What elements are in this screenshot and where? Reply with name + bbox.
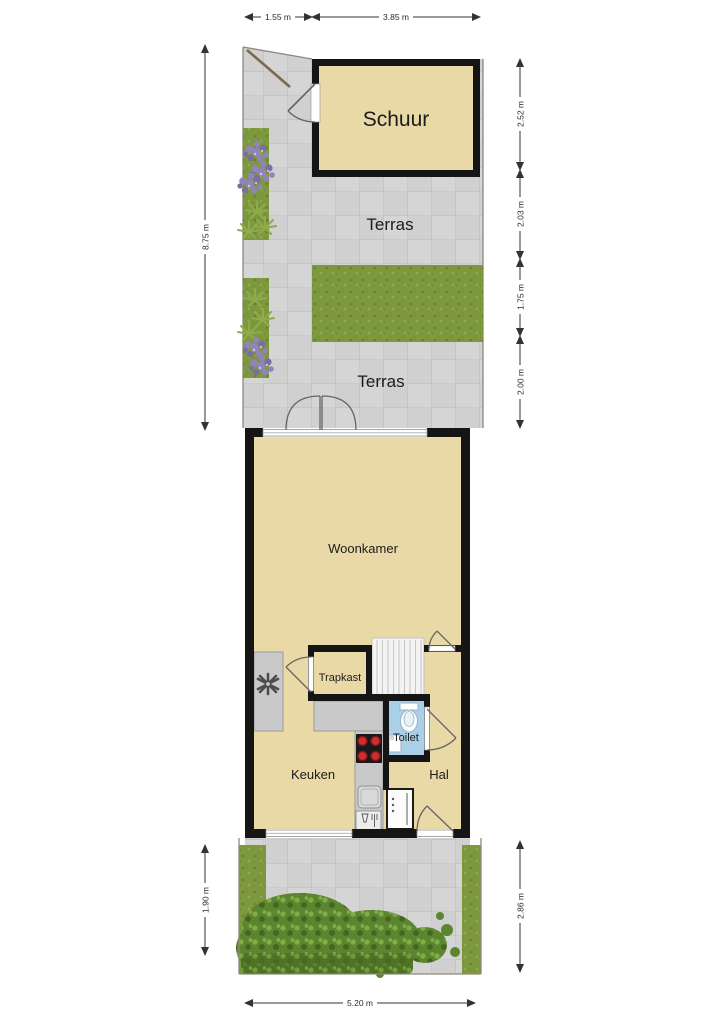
floorplan-page: Terras Terras Schuur xyxy=(0,0,724,1024)
room-label-terras-lower: Terras xyxy=(357,372,404,391)
room-label-hal: Hal xyxy=(429,767,449,782)
back-garden xyxy=(236,838,481,978)
house: Woonkamer Trapkast Toilet Keuken Hal xyxy=(245,396,470,838)
lawn xyxy=(312,265,483,342)
stairs xyxy=(372,638,424,700)
stove-icon xyxy=(356,734,382,763)
schuur-room: Schuur xyxy=(288,59,480,177)
dim-left: 8.75 m xyxy=(201,224,211,250)
dim-right-2: 2.03 m xyxy=(516,201,526,227)
room-label-terras-upper: Terras xyxy=(366,215,413,234)
room-label-trapkast: Trapkast xyxy=(319,672,361,684)
dim-top-2: 3.85 m xyxy=(383,12,409,22)
room-label-toilet: Toilet xyxy=(393,732,419,744)
dim-top-1: 1.55 m xyxy=(265,12,291,22)
floorplan-drawing: Terras Terras Schuur xyxy=(0,0,724,1024)
sink-cabinet-icon xyxy=(356,811,381,830)
flower-bed-lower xyxy=(238,278,274,378)
garden-border-right xyxy=(462,845,481,974)
dim-right-4: 2.00 m xyxy=(516,369,526,395)
room-label-keuken: Keuken xyxy=(291,767,335,782)
sink-icon xyxy=(358,786,381,808)
appliance-icon xyxy=(387,789,413,829)
dim-right-1: 2.52 m xyxy=(516,101,526,127)
schuur-door-opening xyxy=(311,84,320,122)
dim-bottom: 5.20 m xyxy=(347,998,373,1008)
garden-hedge xyxy=(241,953,413,974)
dim-bottom-right: 2.86 m xyxy=(516,893,526,919)
dim-right-3: 1.75 m xyxy=(516,284,526,310)
room-label-woonkamer: Woonkamer xyxy=(328,541,399,556)
back-door-opening xyxy=(417,830,453,837)
dim-bottom-left: 1.90 m xyxy=(201,887,211,913)
toilet-icon xyxy=(400,703,418,732)
room-label-schuur: Schuur xyxy=(363,108,430,131)
